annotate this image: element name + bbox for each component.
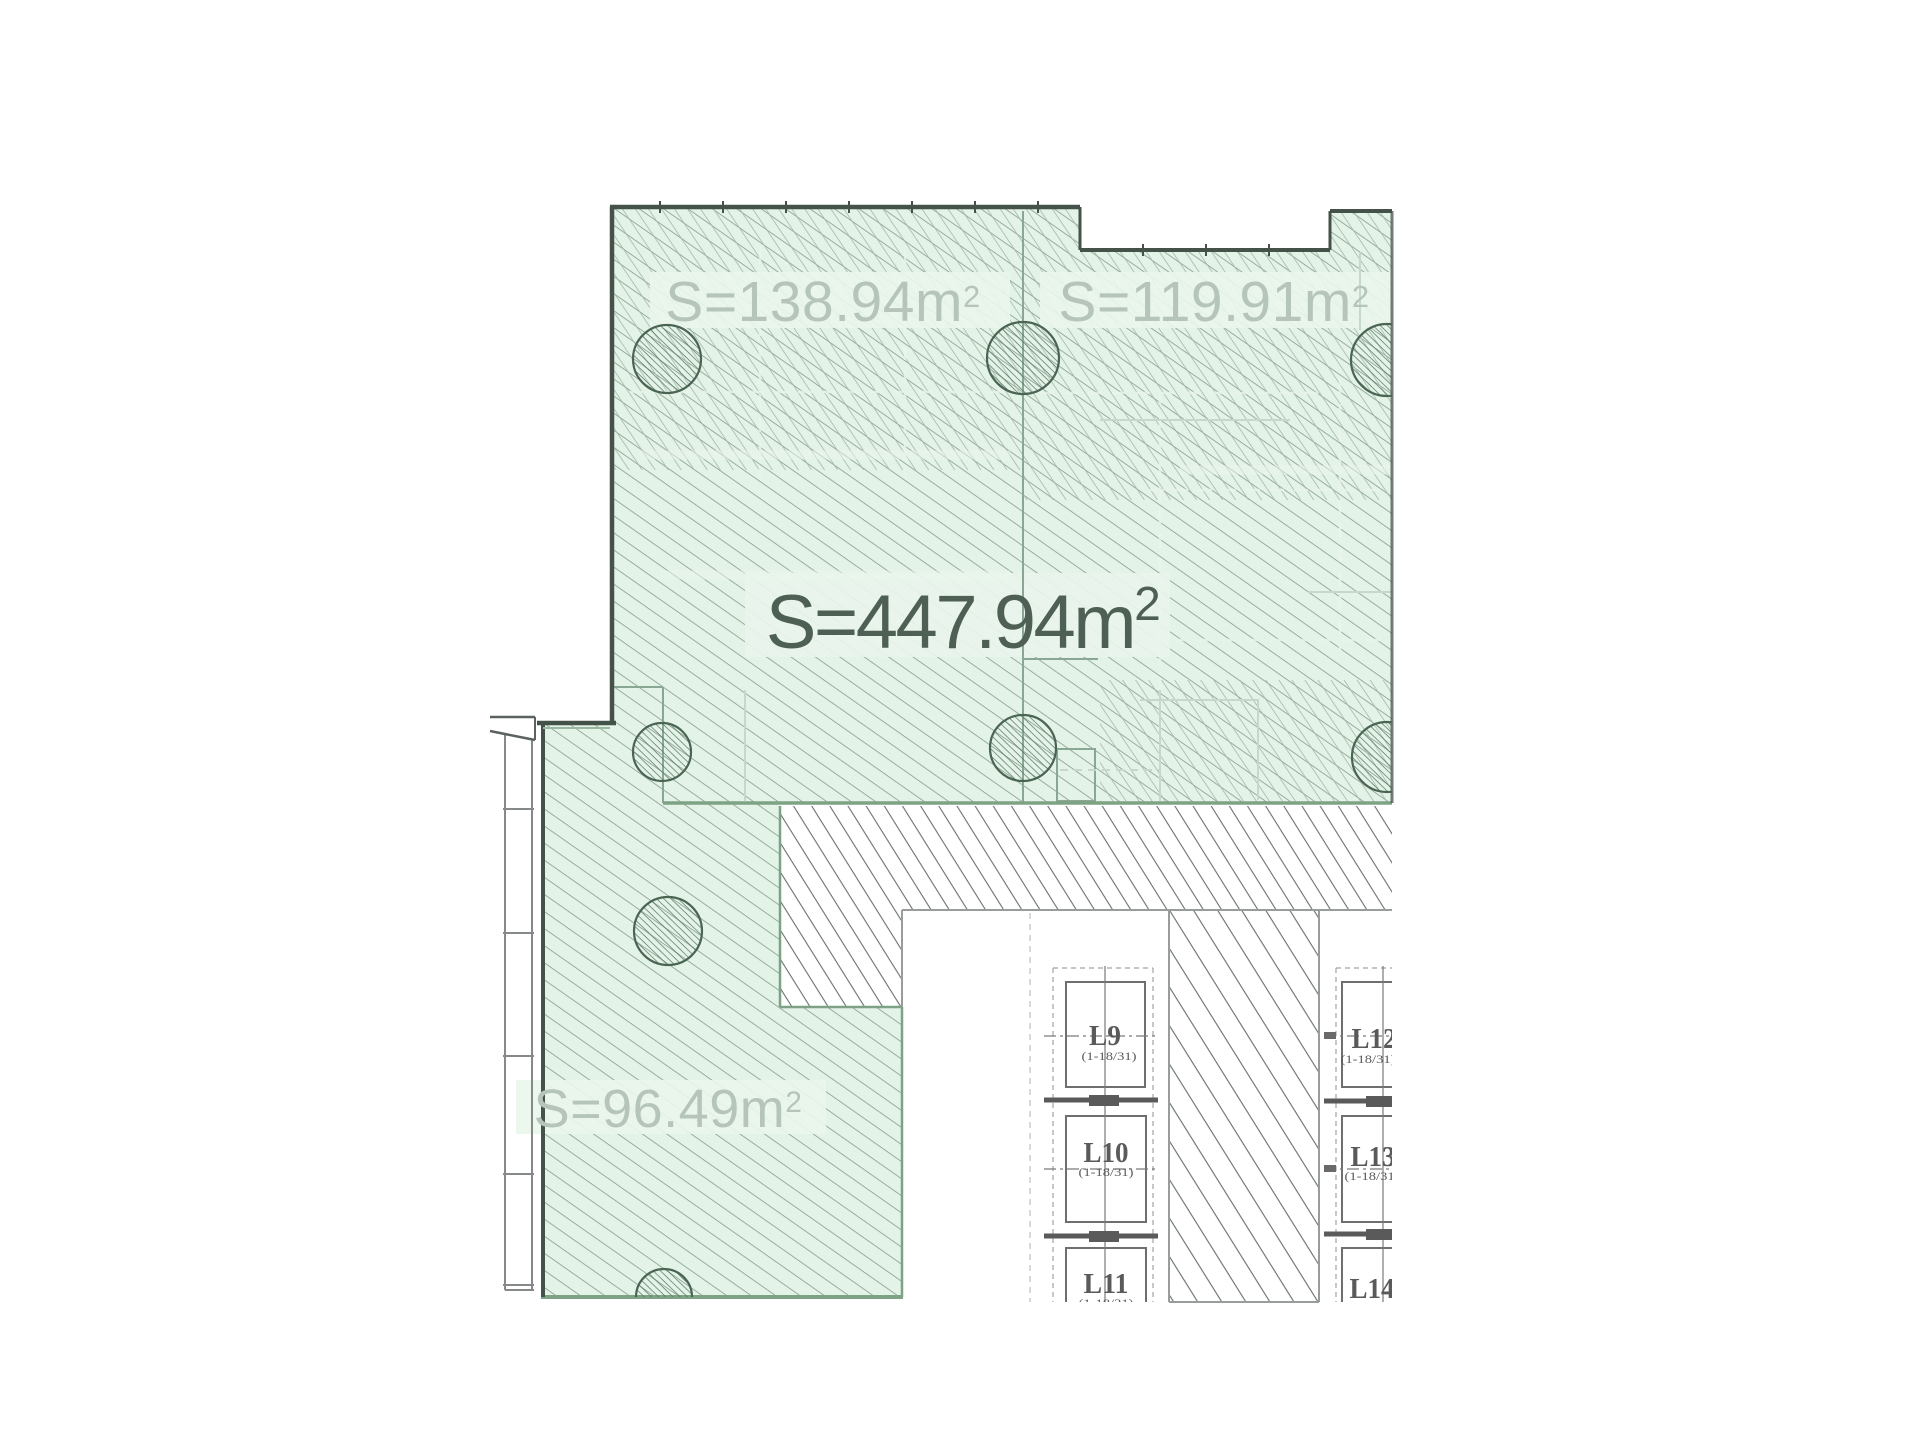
svg-text:S=96.49m2: S=96.49m2 bbox=[534, 1079, 803, 1139]
svg-text:(1-18/31): (1-18/31) bbox=[1079, 1165, 1134, 1179]
svg-text:S=138.94m2: S=138.94m2 bbox=[665, 270, 980, 334]
svg-text:(1-18/31): (1-18/31) bbox=[1082, 1049, 1137, 1063]
svg-text:(1-18/31): (1-18/31) bbox=[1341, 1052, 1396, 1066]
svg-text:S=447.94m2: S=447.94m2 bbox=[766, 578, 1159, 665]
svg-text:(1-18/31): (1-18/31) bbox=[1345, 1169, 1400, 1183]
svg-text:L12: L12 bbox=[1352, 1023, 1397, 1055]
svg-text:S=119.91m2: S=119.91m2 bbox=[1058, 270, 1369, 334]
svg-text:L14: L14 bbox=[1350, 1273, 1395, 1305]
svg-text:L9: L9 bbox=[1089, 1020, 1121, 1052]
svg-text:(1-18/31): (1-18/31) bbox=[1079, 1296, 1134, 1310]
